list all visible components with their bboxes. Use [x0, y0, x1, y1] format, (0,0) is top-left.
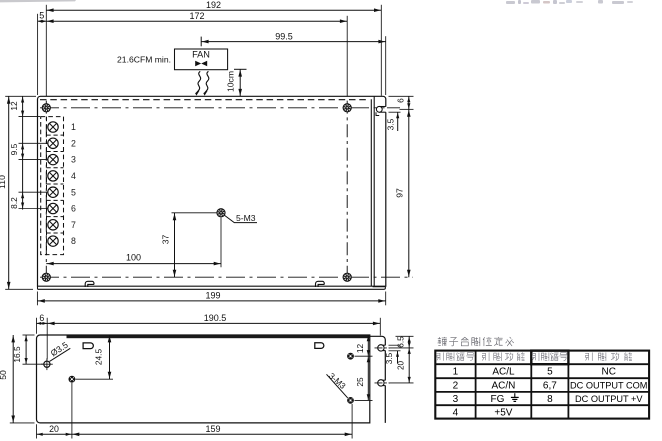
svg-text:9.5: 9.5: [9, 143, 19, 155]
svg-text:1: 1: [71, 122, 76, 132]
svg-text:3: 3: [453, 394, 459, 405]
svg-text:8: 8: [547, 394, 553, 405]
svg-text:20: 20: [49, 424, 59, 434]
svg-text:50: 50: [0, 370, 8, 380]
svg-text:24.5: 24.5: [94, 349, 104, 366]
svg-text:100: 100: [126, 252, 141, 262]
svg-text:1: 1: [453, 367, 459, 378]
svg-text:2: 2: [71, 138, 76, 148]
svg-text:2: 2: [453, 381, 459, 392]
svg-text:37: 37: [160, 235, 170, 245]
svg-text:6: 6: [396, 98, 406, 103]
svg-text:+5V: +5V: [494, 407, 512, 418]
svg-text:FAN: FAN: [192, 49, 210, 59]
svg-text:3: 3: [71, 155, 76, 165]
svg-text:6: 6: [71, 204, 76, 214]
svg-text:FG: FG: [491, 394, 505, 405]
svg-text:5: 5: [71, 187, 76, 197]
svg-text:DC OUTPUT COM: DC OUTPUT COM: [570, 381, 647, 391]
svg-text:5: 5: [39, 11, 44, 21]
svg-text:20: 20: [396, 361, 405, 371]
svg-text:DC OUTPUT +V: DC OUTPUT +V: [575, 394, 643, 404]
svg-text:12: 12: [355, 344, 365, 354]
svg-text:97: 97: [395, 188, 405, 198]
svg-text:3.5: 3.5: [385, 352, 394, 364]
svg-text:6.5: 6.5: [396, 336, 405, 348]
svg-text:192: 192: [206, 0, 221, 10]
svg-text:5: 5: [547, 367, 553, 378]
svg-text:10cm: 10cm: [226, 71, 236, 92]
svg-text:4: 4: [453, 407, 459, 418]
svg-text:3.5: 3.5: [385, 118, 395, 130]
svg-text:6: 6: [39, 313, 44, 323]
svg-text:172: 172: [189, 11, 204, 21]
svg-text:199: 199: [205, 290, 220, 300]
svg-text:6,7: 6,7: [543, 381, 557, 392]
svg-text:190.5: 190.5: [204, 313, 227, 323]
svg-text:NC: NC: [602, 367, 616, 378]
svg-text:4: 4: [71, 171, 76, 181]
svg-text:110: 110: [0, 175, 7, 189]
svg-text:8: 8: [71, 236, 76, 246]
svg-text:12: 12: [9, 101, 19, 111]
svg-text:21.6CFM min.: 21.6CFM min.: [117, 54, 171, 64]
svg-text:7: 7: [71, 220, 76, 230]
svg-text:AC/L: AC/L: [492, 367, 515, 378]
svg-text:159: 159: [205, 424, 220, 434]
svg-text:25: 25: [355, 377, 365, 387]
svg-text:99.5: 99.5: [275, 31, 293, 41]
svg-text:5-M3: 5-M3: [236, 213, 256, 223]
svg-text:8.2: 8.2: [9, 197, 19, 209]
svg-text:AC/N: AC/N: [491, 381, 515, 392]
